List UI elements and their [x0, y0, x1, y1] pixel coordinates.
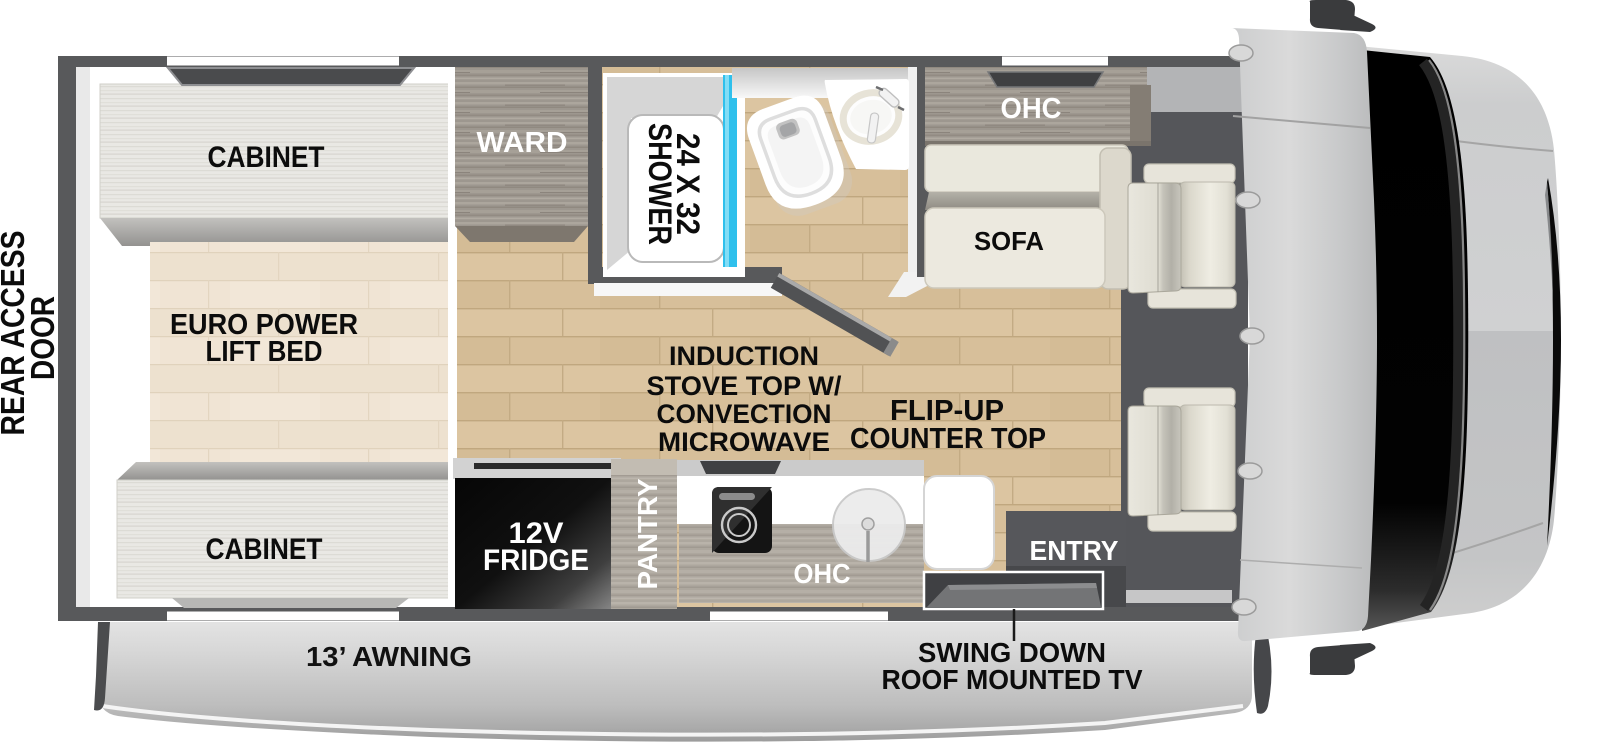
svg-text:INDUCTION: INDUCTION [669, 341, 819, 371]
svg-text:WARD: WARD [477, 127, 568, 159]
svg-text:LIFT BED: LIFT BED [206, 336, 323, 368]
svg-text:SOFA: SOFA [974, 226, 1044, 256]
svg-text:FRIDGE: FRIDGE [483, 544, 589, 577]
svg-text:STOVE TOP W/: STOVE TOP W/ [647, 371, 842, 401]
svg-text:CONVECTION: CONVECTION [657, 399, 832, 429]
svg-text:MICROWAVE: MICROWAVE [658, 427, 830, 457]
svg-text:24 X 32SHOWER: 24 X 32SHOWER [642, 123, 706, 245]
svg-text:PANTRY: PANTRY [632, 478, 663, 589]
svg-text:13’ AWNING: 13’ AWNING [306, 641, 472, 672]
svg-text:OHC: OHC [794, 558, 851, 589]
svg-text:ENTRY: ENTRY [1030, 535, 1119, 566]
svg-text:COUNTER TOP: COUNTER TOP [850, 423, 1046, 455]
svg-text:ROOF MOUNTED TV: ROOF MOUNTED TV [882, 664, 1143, 695]
svg-text:CABINET: CABINET [208, 141, 325, 174]
svg-text:CABINET: CABINET [206, 533, 323, 566]
svg-text:OHC: OHC [1001, 93, 1062, 125]
